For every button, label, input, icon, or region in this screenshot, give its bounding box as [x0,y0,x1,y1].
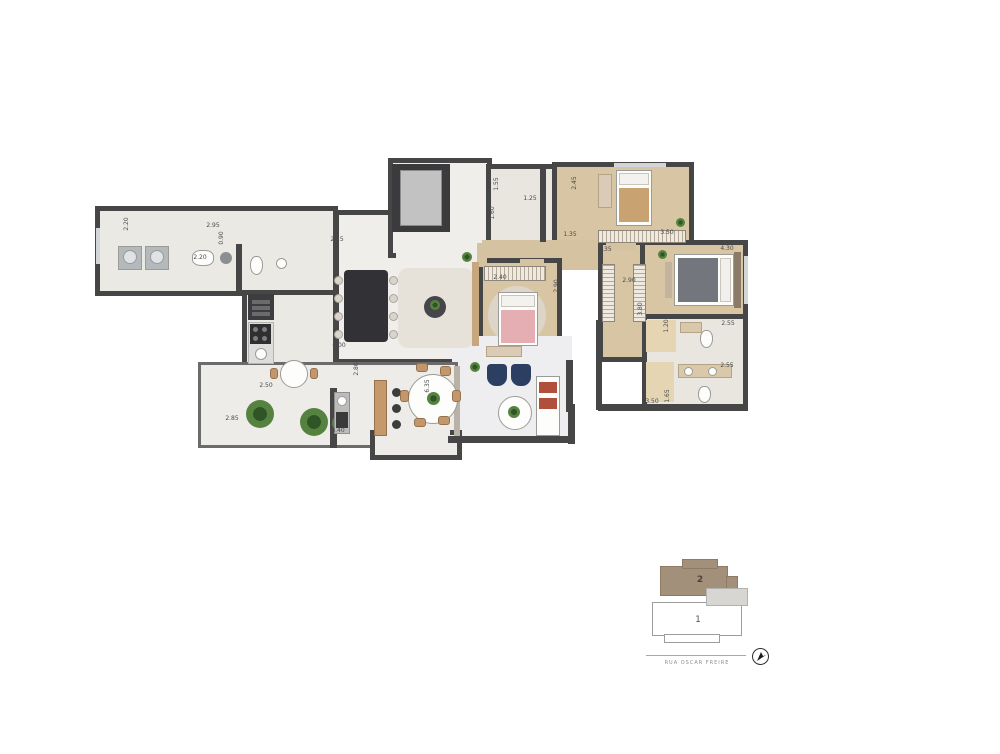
terrace-chair [440,366,451,376]
terrace-chair [416,363,428,372]
cooktop-burner [262,327,267,332]
dimension-label: 2.55 [720,363,733,369]
dining-chair [389,330,398,339]
dimension-label: 2.90 [554,279,560,292]
dimension-label: 3.80 [638,302,644,315]
wall-bath-divider [540,168,546,242]
keyplan-unit-1-label: 1 [695,615,701,625]
dimension-label: 1.25 [523,196,536,202]
terrace-chair [414,418,426,427]
window-master [744,256,748,304]
dimension-label: 6.35 [425,379,431,392]
dimension-label: 2.40 [493,275,506,281]
dimension-label: 1.35 [563,232,576,238]
palm-plant [246,400,274,428]
terrace-table-plant [427,392,440,405]
dimension-label: 6.40 [331,428,344,434]
masterbath-sink [708,367,717,376]
plant-bedroom2 [676,218,685,227]
north-arrow-icon [752,648,769,665]
grill [336,412,348,428]
dining-chair [389,294,398,303]
keyplan-unit-2-label: 2 [697,575,703,585]
dining-chair [334,276,343,285]
dining-chair [389,276,398,285]
kitchen-sink [255,348,267,360]
breakfast-chair [270,368,278,379]
dining-chair [334,294,343,303]
street-line [646,655,746,656]
wall-laundry-wc-divider [236,244,242,296]
palm-plant [300,408,328,436]
master-bed-pillows [720,258,731,302]
cooktop-burner [253,327,258,332]
plant-hallway [658,250,667,259]
plant-coffee-table [508,406,520,418]
dining-chair [389,312,398,321]
dimension-label: 2.20 [124,217,130,230]
elevator-cab [400,170,442,226]
dimension-label: 2.15 [330,237,343,243]
dining-chair [334,330,343,339]
keyplan-unit-2-shape [682,559,718,569]
dining-chair [334,312,343,321]
wall-step-connector [568,404,575,444]
oven-doors [252,298,270,316]
master-bench [665,262,672,298]
dimension-label: 2.20 [193,255,206,261]
laundry-basin [220,252,232,264]
bedroom2-blanket [619,188,649,222]
street-label: RUA OSCAR FREIRE [665,660,730,666]
terrace-chair [438,416,450,425]
armchair-blue [487,364,507,386]
wc-sink [276,258,287,269]
dimension-label: 2.85 [225,416,238,422]
wall-master-bath-bottom [598,404,748,411]
dimension-label: 1.65 [665,389,671,402]
lavabo-tile [646,320,676,352]
bedroom3-blanket [501,310,535,343]
wc-toilet [250,256,263,275]
terrace-bar [374,380,387,436]
bedroom2-desk [598,174,612,208]
dimension-label: 2.50 [259,383,272,389]
keyplan-grey-extension [706,588,748,606]
floorplan-page: 2.202.950.902.202.154.001.551.601.252.45… [0,0,1000,754]
masterbath-toilet [698,386,711,403]
dimension-label: 2.90 [622,278,635,284]
closet-wardrobe-left [602,264,615,322]
cooktop-burner [253,336,258,341]
armchair-blue [511,364,531,386]
dimension-label: 2.45 [572,176,578,189]
dimension-label: 2.80 [354,362,360,375]
master-headboard [734,252,741,308]
breakfast-table [280,360,308,388]
wall-living-bottom [448,436,574,443]
terrace-chair [452,390,461,402]
sofa-cushion [539,382,557,393]
dimension-label: 3.35 [598,247,611,253]
plant-living [470,362,480,372]
window-bedroom2 [614,163,666,167]
plant-corner [462,252,472,262]
dimension-label: 2.95 [206,223,219,229]
dryer-drum [150,250,164,264]
bar-stool [392,404,401,413]
master-bed-blanket [678,258,718,302]
wall-master-corridor-left [596,320,602,410]
window-laundry [96,228,100,264]
bar-stool [392,420,401,429]
masterbath-sink [684,367,693,376]
bedroom2-pillow [619,173,649,185]
plant-family [430,300,440,310]
tv-sideboard [472,262,479,346]
grill-sink [337,396,347,406]
cooktop-burner [262,336,267,341]
opening-balcony [380,428,450,436]
dimension-label: 3.50 [660,230,673,236]
keyplan-unit-1-shape [664,634,720,643]
washing-machine-drum [123,250,137,264]
bedroom3-desk [486,346,522,357]
dimension-label: 2.55 [721,321,734,327]
dining-table [344,270,388,342]
dimension-label: 0.90 [219,231,225,244]
dimension-label: 3.50 [645,399,658,405]
dimension-label: 4.00 [335,251,341,264]
breakfast-chair [310,368,318,379]
terrace-chair [400,390,409,402]
lavabo-sink-cabinet [680,322,702,333]
dimension-label: 4.30 [720,246,733,252]
bedroom3-pillow [501,295,535,307]
dimension-label: 1.55 [494,177,500,190]
dimension-label: 1.60 [490,206,496,219]
sofa-cushion [539,398,557,409]
dimension-label: 1.20 [664,319,670,332]
dimension-label: 6.00 [332,343,345,349]
